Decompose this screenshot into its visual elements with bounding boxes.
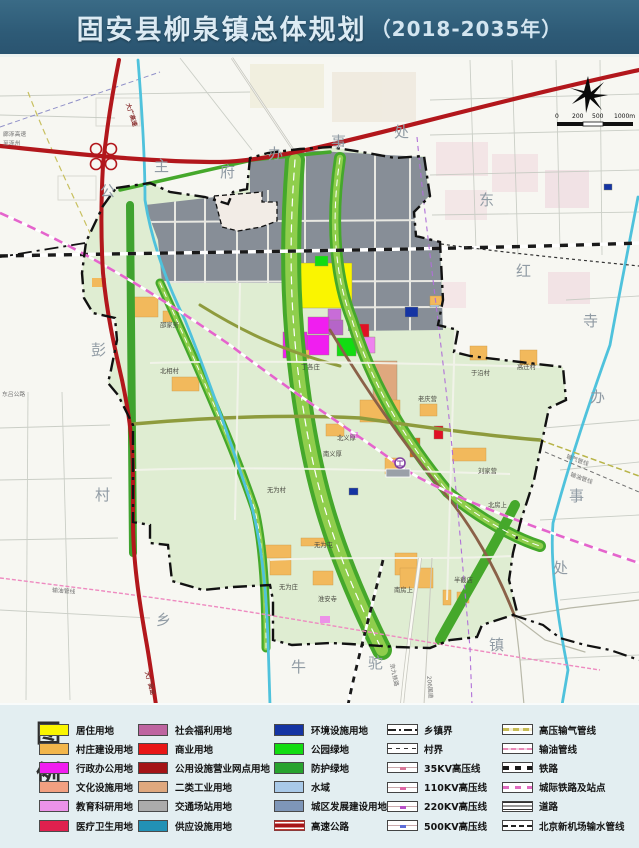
scale-tick-1000: 1000m [614,113,635,120]
legend-item-airport-water-pipeline: 北京新机场输水管线 [502,816,625,835]
legend-item-industrial-2: 二类工业用地 [138,778,270,797]
svg-text:驼: 驼 [368,654,384,672]
legend-item-oil-pipeline: 输油管线 [502,739,625,758]
residential-swatch [39,724,69,736]
road-swatch [502,801,533,812]
svg-text:无为庄: 无为庄 [279,582,298,591]
svg-text:公: 公 [100,182,116,200]
station-name-plate [386,469,410,477]
plan-period: （2018-2035年） [371,13,563,42]
kv35-swatch [387,762,418,773]
svg-text:办: 办 [268,145,284,163]
legend-col-1: 居住用地 村庄建设用地 行政办公用地 文化设施用地 教育科研用地 医疗卫生用地 [39,720,133,835]
svg-text:高迁村: 高迁村 [517,362,537,371]
legend-item-town-boundary: 乡镇界 [387,720,487,739]
svg-text:村: 村 [95,486,111,504]
svg-text:南义厚: 南义厚 [323,449,343,458]
kv500-swatch [387,820,418,831]
svg-text:事: 事 [331,133,347,151]
svg-text:镇: 镇 [489,636,505,654]
education-swatch [39,800,69,812]
svg-text:东吕公路: 东吕公路 [2,390,25,398]
legend-item-kv110: 110KV高压线 [387,778,487,797]
urban-dev-swatch [274,800,304,812]
legend-col-2: 社会福利用地 商业用地 公用设施营业网点用地 二类工业用地 交通场站用地 供应设… [138,720,270,835]
svg-text:办: 办 [590,388,606,406]
legend-item-expressway: 高速公路 [274,816,387,835]
svg-text:廊涿高速: 廊涿高速 [3,130,26,138]
legend-item-commercial: 商业用地 [138,739,270,758]
svg-text:无为屯: 无为屯 [314,540,334,549]
legend-item-park-green: 公园绿地 [274,739,387,758]
scale-tick-500: 500 [592,113,604,120]
legend-item-village-construction: 村庄建设用地 [39,739,133,758]
water-swatch [274,781,304,793]
oil-pipeline-swatch [502,743,533,754]
legend-item-residential: 居住用地 [39,720,133,739]
svg-text:寺: 寺 [583,312,599,330]
legend-item-transport-station: 交通场站用地 [138,797,270,816]
svg-text:牛: 牛 [291,658,307,676]
legend-col-3: 环境设施用地 公园绿地 防护绿地 水域 城区发展建设用地 高速公路 [274,720,387,835]
legend-item-road: 道路 [502,797,625,816]
social-swatch [138,724,168,736]
legend-item-education: 教育科研用地 [39,797,133,816]
legend-item-protective-green: 防护绿地 [274,758,387,777]
svg-text:彭: 彭 [91,341,107,359]
legend-item-kv35: 35KV高压线 [387,758,487,777]
legend-item-environment-facility: 环境设施用地 [274,720,387,739]
outlet-swatch [138,762,168,774]
svg-text:淮安寺: 淮安寺 [318,594,337,603]
legend-item-cultural: 文化设施用地 [39,778,133,797]
village-swatch [39,743,69,755]
legend-item-railway: 铁路 [502,758,625,777]
gas-pipeline-swatch [502,724,533,735]
scale-tick-200: 200 [572,113,584,120]
legend-item-kv220: 220KV高压线 [387,797,487,816]
legend-item-urban-development: 城区发展建设用地 [274,797,387,816]
title-bar: 固安县柳泉镇总体规划 （2018-2035年） [0,0,639,57]
town-boundary-swatch [387,724,418,735]
legend-item-medical: 医疗卫生用地 [39,816,133,835]
svg-text:府: 府 [220,163,236,181]
svg-text:处: 处 [553,559,569,577]
legend-panel: 图 例 居住用地 村庄建设用地 行政办公用地 文化设施用地 教育科研用地 医疗卫… [0,703,639,848]
legend-item-social-welfare: 社会福利用地 [138,720,270,739]
park-swatch [274,743,304,755]
svg-text:东: 东 [479,191,495,209]
svg-text:乡: 乡 [156,611,172,629]
protective-swatch [274,762,304,774]
intercity-rail-swatch [502,782,533,793]
svg-text:红: 红 [516,262,532,280]
legend-item-gas-pipeline: 高压输气管线 [502,720,625,739]
svg-text:南房上: 南房上 [394,585,413,594]
legend-item-intercity-rail: 城际铁路及站点 [502,778,625,797]
svg-text:于沿村: 于沿村 [471,368,491,377]
medical-swatch [39,820,69,832]
legend-item-admin-office: 行政办公用地 [39,758,133,777]
scale-tick-0: 0 [555,113,559,120]
kv220-swatch [387,801,418,812]
plan-title: 固安县柳泉镇总体规划 [77,8,367,47]
admin-swatch [39,762,69,774]
svg-text:丁各庄: 丁各庄 [301,362,320,371]
svg-text:半截店: 半截店 [454,575,473,584]
legend-item-water: 水域 [274,778,387,797]
svg-text:无为村: 无为村 [267,485,287,494]
svg-text:事: 事 [569,487,585,505]
transport-swatch [138,800,168,812]
svg-text:北义厚: 北义厚 [337,434,357,442]
legend-col-4: 乡镇界 村界 35KV高压线 110KV高压线 220KV高压线 500KV高压… [387,720,487,835]
legend-item-village-boundary: 村界 [387,739,487,758]
svg-text:邵家务: 邵家务 [160,320,180,329]
svg-text:刘家营: 刘家营 [478,466,497,475]
legend-item-kv500: 500KV高压线 [387,816,487,835]
railway-swatch [502,762,533,773]
legend-col-5: 高压输气管线 输油管线 铁路 城际铁路及站点 道路 北京新机场输水管线 [502,720,625,835]
svg-text:主: 主 [154,157,170,175]
svg-text:处: 处 [394,123,410,141]
svg-text:至涿州: 至涿州 [3,139,21,147]
plan-poster: 0 200 500 1000m 公 主 府 办 事 处 东 红 寺 办 事 处 … [0,0,639,848]
supply-swatch [138,820,168,832]
expressway-swatch [274,820,305,831]
svg-text:北相村: 北相村 [160,366,180,375]
airport-water-swatch [502,820,533,831]
kv110-swatch [387,782,418,793]
legend-item-supply-facility: 供应设施用地 [138,816,270,835]
village-boundary-swatch [387,743,418,754]
svg-text:老庆营: 老庆营 [418,394,437,403]
industrial-swatch [138,781,168,793]
cultural-swatch [39,781,69,793]
svg-text:北房上: 北房上 [488,500,507,509]
legend-item-public-outlet: 公用设施营业网点用地 [138,758,270,777]
environment-swatch [274,724,304,736]
commercial-swatch [138,743,168,755]
